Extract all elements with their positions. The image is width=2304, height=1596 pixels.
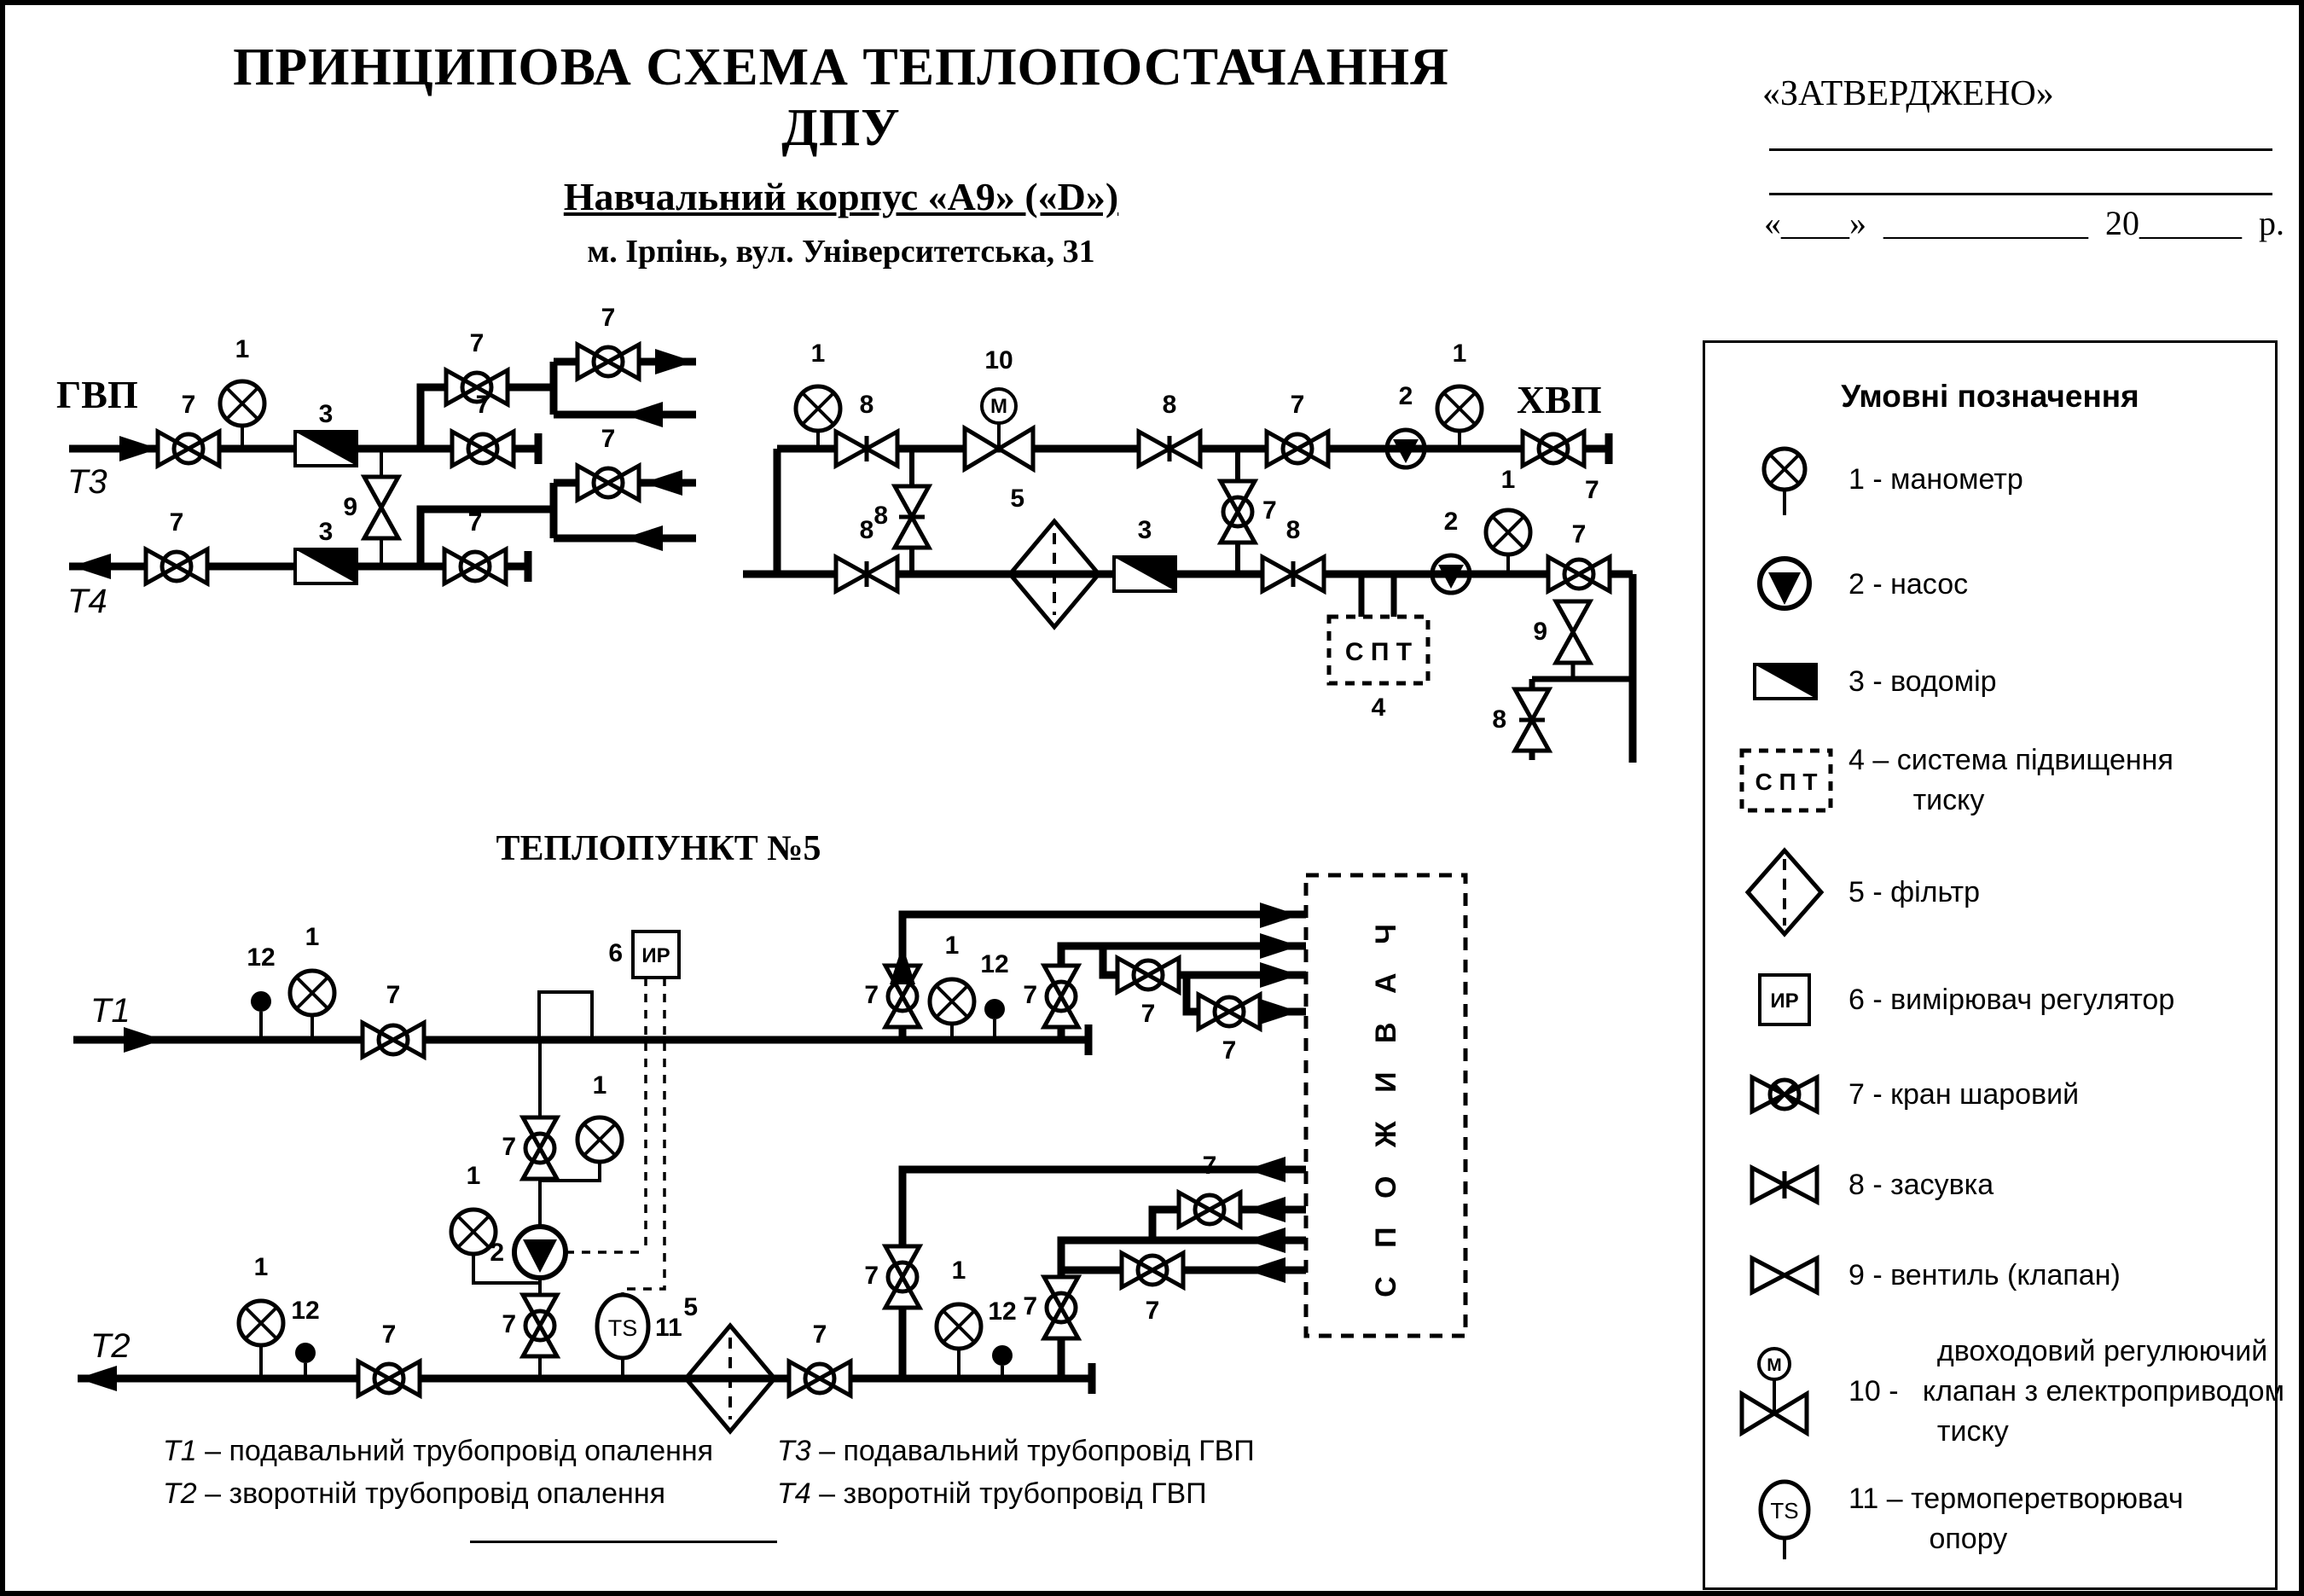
legend-item-label: 9 - вентиль (клапан)	[1848, 1256, 2121, 1296]
device-number: 7	[1023, 1292, 1037, 1320]
legend-item-label: 4 – система підвищення тиску	[1848, 740, 2173, 821]
legend-item-water-meter: 3 - водомір	[1721, 647, 2275, 716]
legend-item-temperature-sensor: 12 - датчик температури	[1721, 1586, 2275, 1596]
legend-item-pump: 2 - насос	[1721, 544, 2275, 625]
line-label-t4: Т4	[67, 583, 107, 620]
device-number: 7	[170, 508, 184, 537]
footnote-prefix: Т4	[777, 1477, 811, 1510]
device-number: 1	[593, 1071, 607, 1100]
water-meter-icon	[295, 549, 357, 583]
legend-panel: Умовні позначення 1 - манометр 2 - насос	[1703, 340, 2278, 1590]
temperature-sensor-icon	[984, 999, 1005, 1019]
flow-arrow-icon	[72, 554, 111, 579]
device-number: 5	[683, 1293, 698, 1321]
device-number: 7	[1222, 1036, 1237, 1065]
valve-icon	[1556, 601, 1590, 663]
xvp-title: ХВП	[1517, 378, 1602, 421]
ts-label: TS	[608, 1315, 638, 1341]
temperature-sensor-icon	[992, 1345, 1013, 1366]
footnote-prefix: Т2	[163, 1477, 197, 1510]
ball-valve-icon	[523, 1295, 557, 1356]
device-number: 7	[1262, 496, 1277, 525]
consumer-label: С П О Ж И В А Ч	[1370, 914, 1402, 1297]
device-number: 3	[1138, 516, 1152, 544]
manometer-icon	[239, 1301, 283, 1345]
device-number: 8	[1286, 516, 1301, 544]
device-number: 7	[1291, 391, 1305, 419]
thermo-transducer-icon: TS	[597, 1295, 648, 1358]
device-number: 12	[980, 950, 1008, 978]
device-number: 7	[1023, 981, 1037, 1009]
gate-valve-icon	[895, 486, 929, 548]
flow-arrow-icon	[1260, 902, 1299, 928]
flow-arrow-icon	[1260, 962, 1299, 988]
device-number: 7	[601, 304, 616, 332]
spt-label: С П Т	[1345, 638, 1412, 666]
ball-valve-icon	[1044, 1277, 1078, 1338]
device-number: 2	[1399, 382, 1413, 410]
heatpoint-title: ТЕПЛОПУНКТ №5	[496, 829, 821, 868]
device-number: 7	[1146, 1297, 1160, 1325]
gate-valve-icon	[1721, 1151, 1848, 1219]
footnote-t2: Т2 – зворотній трубопровід опалення	[163, 1472, 713, 1515]
ball-valve-icon	[444, 549, 506, 583]
gate-valve-icon	[1139, 432, 1200, 466]
device-number: 9	[343, 493, 357, 521]
footnote-text: – зворотній трубопровід опалення	[197, 1477, 665, 1510]
measuring-regulator-icon: ИР	[1721, 961, 1848, 1038]
ball-valve-icon	[358, 1361, 420, 1396]
footnote-t4: Т4 – зворотній трубопровід ГВП	[777, 1472, 1255, 1515]
legend-item-pressure-boost: С П Т 4 – система підвищення тиску	[1721, 738, 2275, 823]
device-number: 7	[864, 981, 879, 1009]
device-number: 1	[945, 931, 960, 960]
flow-arrow-icon	[119, 436, 159, 461]
device-number: 7	[502, 1310, 516, 1338]
ir-label: ИР	[1770, 990, 1798, 1013]
device-number: 8	[1163, 391, 1177, 419]
legend-item-label: 3 - водомір	[1848, 662, 1997, 702]
device-number: 1	[952, 1256, 966, 1285]
gvp-title: ГВП	[56, 373, 138, 416]
device-number: 9	[1533, 618, 1547, 646]
legend-item-filter: 5 - фільтр	[1721, 845, 2275, 939]
ball-valve-icon	[1179, 1193, 1240, 1227]
flow-arrow-icon	[1246, 1257, 1285, 1283]
device-number: 1	[235, 335, 250, 363]
ball-valve-icon	[1523, 432, 1584, 466]
device-number: 12	[988, 1297, 1016, 1326]
legend-item-label: 2 - насос	[1848, 565, 1968, 605]
device-number: 1	[1453, 340, 1467, 368]
manometer-icon	[577, 1117, 622, 1162]
ts-label: TS	[1770, 1498, 1798, 1523]
device-number: 6	[608, 939, 623, 967]
manometer-icon	[1721, 437, 1848, 522]
device-number: 4	[1372, 694, 1386, 722]
device-number: 7	[386, 981, 401, 1009]
legend-item-label: 6 - вимірювач регулятор	[1848, 980, 2174, 1020]
schematic-page: ПРИНЦИПОВА СХЕМА ТЕПЛОПОСТАЧАННЯ ДПУ Нав…	[0, 0, 2304, 1596]
flow-arrow-icon	[643, 470, 682, 496]
manometer-icon	[220, 381, 264, 426]
legend-item-ball-valve: 7 - кран шаровий	[1721, 1060, 2275, 1129]
line-label-t1: Т1	[90, 992, 131, 1030]
device-number: 5	[1010, 485, 1024, 513]
water-meter-icon	[1114, 557, 1175, 591]
thermo-transducer-icon: TS	[1721, 1474, 1848, 1564]
flow-arrow-icon	[78, 1366, 117, 1391]
flow-arrow-icon	[1246, 1197, 1285, 1222]
ball-valve-icon	[789, 1361, 850, 1396]
water-meter-icon	[1721, 647, 1848, 716]
ball-valve-icon	[1122, 1253, 1183, 1287]
temperature-sensor-icon	[251, 991, 271, 1012]
device-number: 2	[1444, 508, 1459, 536]
footnote-text: – зворотній трубопровід ГВП	[811, 1477, 1207, 1510]
flow-arrow-icon	[1246, 1227, 1285, 1253]
ball-valve-icon	[158, 432, 219, 466]
ball-valve-icon	[1221, 481, 1255, 543]
device-number: 7	[182, 391, 196, 419]
valve-motor-label: M	[990, 395, 1007, 418]
control-lines	[566, 978, 665, 1295]
manometer-icon	[1486, 510, 1530, 554]
ball-valve-icon	[146, 549, 207, 583]
device-number: 1	[1501, 466, 1516, 494]
pump-icon	[1721, 544, 1848, 625]
device-number: 2	[490, 1239, 504, 1267]
legend-item-label: 5 - фільтр	[1848, 873, 1980, 913]
ball-valve-icon	[363, 1023, 424, 1057]
device-number: 7	[813, 1320, 827, 1349]
footnote-t1: Т1 – подавальний трубопровід опалення	[163, 1430, 713, 1472]
heatpoint-symbols: ИР TS	[78, 875, 1465, 1431]
two-way-control-valve-icon: M	[1721, 1338, 1848, 1445]
device-number: 1	[467, 1162, 481, 1190]
flow-arrow-icon	[624, 525, 663, 551]
device-number: 7	[1572, 520, 1587, 548]
legend-item-label: 11 – термоперетворювач опору	[1848, 1479, 2184, 1559]
ball-valve-icon	[1721, 1060, 1848, 1129]
device-number: 7	[1141, 1000, 1156, 1028]
ball-valve-icon	[577, 466, 639, 500]
device-number: 10	[984, 346, 1013, 374]
ball-valve-icon	[577, 345, 639, 379]
flow-arrow-icon	[1260, 999, 1299, 1024]
valve-icon	[364, 477, 398, 538]
pump-icon	[514, 1227, 566, 1278]
device-number: 11	[655, 1314, 682, 1342]
two-way-control-valve-icon: M	[965, 389, 1033, 469]
manometer-icon	[796, 386, 840, 431]
flow-arrow-icon	[124, 1027, 163, 1053]
legend-item-thermo-transducer: TS 11 – термоперетворювач опору	[1721, 1474, 2275, 1564]
device-number: 7	[601, 425, 616, 453]
footnote-text: – подавальний трубопровід ГВП	[811, 1435, 1255, 1467]
legend-item-manometer: 1 - манометр	[1721, 437, 2275, 522]
temperature-sensor-icon	[1721, 1586, 1848, 1596]
ball-valve-icon	[1198, 995, 1260, 1029]
ir-label: ИР	[641, 944, 670, 967]
device-number: 7	[502, 1133, 516, 1161]
line-label-t2: Т2	[90, 1327, 131, 1365]
temperature-sensor-icon	[295, 1343, 316, 1363]
device-number: 3	[319, 518, 334, 546]
legend-item-measuring-regulator: ИР 6 - вимірювач регулятор	[1721, 961, 2275, 1038]
legend-item-label: двоходовий регулюючий 10 - клапан з елек…	[1848, 1332, 2284, 1452]
device-number: 1	[811, 340, 826, 368]
device-number: 1	[305, 923, 320, 951]
device-number: 8	[860, 391, 874, 419]
line-label-t3: Т3	[67, 463, 107, 501]
ball-valve-icon	[1117, 958, 1179, 992]
footnote-prefix: Т3	[777, 1435, 811, 1467]
gate-valve-icon	[1515, 689, 1549, 751]
device-number: 7	[864, 1262, 879, 1290]
legend-title: Умовні позначення	[1705, 379, 2275, 415]
ball-valve-icon	[1548, 557, 1610, 591]
device-number: 7	[1585, 476, 1599, 504]
flow-arrow-icon	[1260, 933, 1299, 959]
flow-arrow-icon	[624, 402, 663, 427]
water-meter-icon	[295, 432, 357, 466]
xvp-symbols: M С П Т	[796, 386, 1610, 751]
signature-line	[470, 1541, 777, 1543]
gate-valve-icon	[836, 432, 897, 466]
manometer-icon	[930, 979, 974, 1024]
legend-item-label: 7 - кран шаровий	[1848, 1075, 2079, 1115]
footnote-gvp: Т3 – подавальний трубопровід ГВП Т4 – зв…	[777, 1430, 1255, 1515]
valve-icon	[1721, 1241, 1848, 1309]
flow-arrow-icon	[655, 349, 694, 374]
legend-item-valve: 9 - вентиль (клапан)	[1721, 1241, 2275, 1309]
valve-motor-label: M	[1767, 1355, 1782, 1375]
filter-icon	[1721, 845, 1848, 939]
legend-item-label: 1 - манометр	[1848, 460, 2023, 500]
pressure-boost-system-icon: С П Т	[1721, 738, 1848, 823]
ball-valve-icon	[1044, 966, 1078, 1027]
manometer-icon	[937, 1304, 981, 1349]
device-number: 1	[254, 1253, 269, 1281]
device-number: 7	[470, 329, 485, 357]
gate-valve-icon	[836, 557, 897, 591]
footnote-prefix: Т1	[163, 1435, 197, 1467]
device-number: 8	[1492, 705, 1506, 734]
footnote-text: – подавальний трубопровід опалення	[197, 1435, 713, 1467]
device-number: 7	[476, 391, 490, 419]
device-number: 8	[860, 516, 874, 544]
spt-label: С П Т	[1755, 769, 1817, 795]
ball-valve-icon	[452, 432, 514, 466]
ball-valve-icon	[523, 1117, 557, 1179]
device-number: 12	[291, 1297, 319, 1325]
flow-arrow-icon	[1246, 1157, 1285, 1182]
gate-valve-icon	[1262, 557, 1324, 591]
device-number: 7	[468, 508, 483, 537]
device-number: 7	[382, 1320, 397, 1349]
legend-item-label: 8 - засувка	[1848, 1165, 1994, 1205]
manometer-icon	[1437, 386, 1482, 431]
manometer-icon	[451, 1210, 496, 1254]
ball-valve-icon	[1267, 432, 1328, 466]
footnote-t3: Т3 – подавальний трубопровід ГВП	[777, 1430, 1255, 1472]
legend-item-gate-valve: 8 - засувка	[1721, 1151, 2275, 1219]
device-number: 8	[873, 502, 888, 530]
manometer-icon	[290, 971, 334, 1015]
device-number: 3	[319, 400, 334, 428]
device-number: 12	[247, 943, 275, 972]
footnote-heating: Т1 – подавальний трубопровід опалення Т2…	[163, 1430, 713, 1515]
ball-valve-icon	[885, 1246, 920, 1308]
device-number: 7	[1203, 1152, 1217, 1180]
legend-item-two-way-valve: M двоходовий регулюючий 10 - клапан з ел…	[1721, 1332, 2275, 1452]
